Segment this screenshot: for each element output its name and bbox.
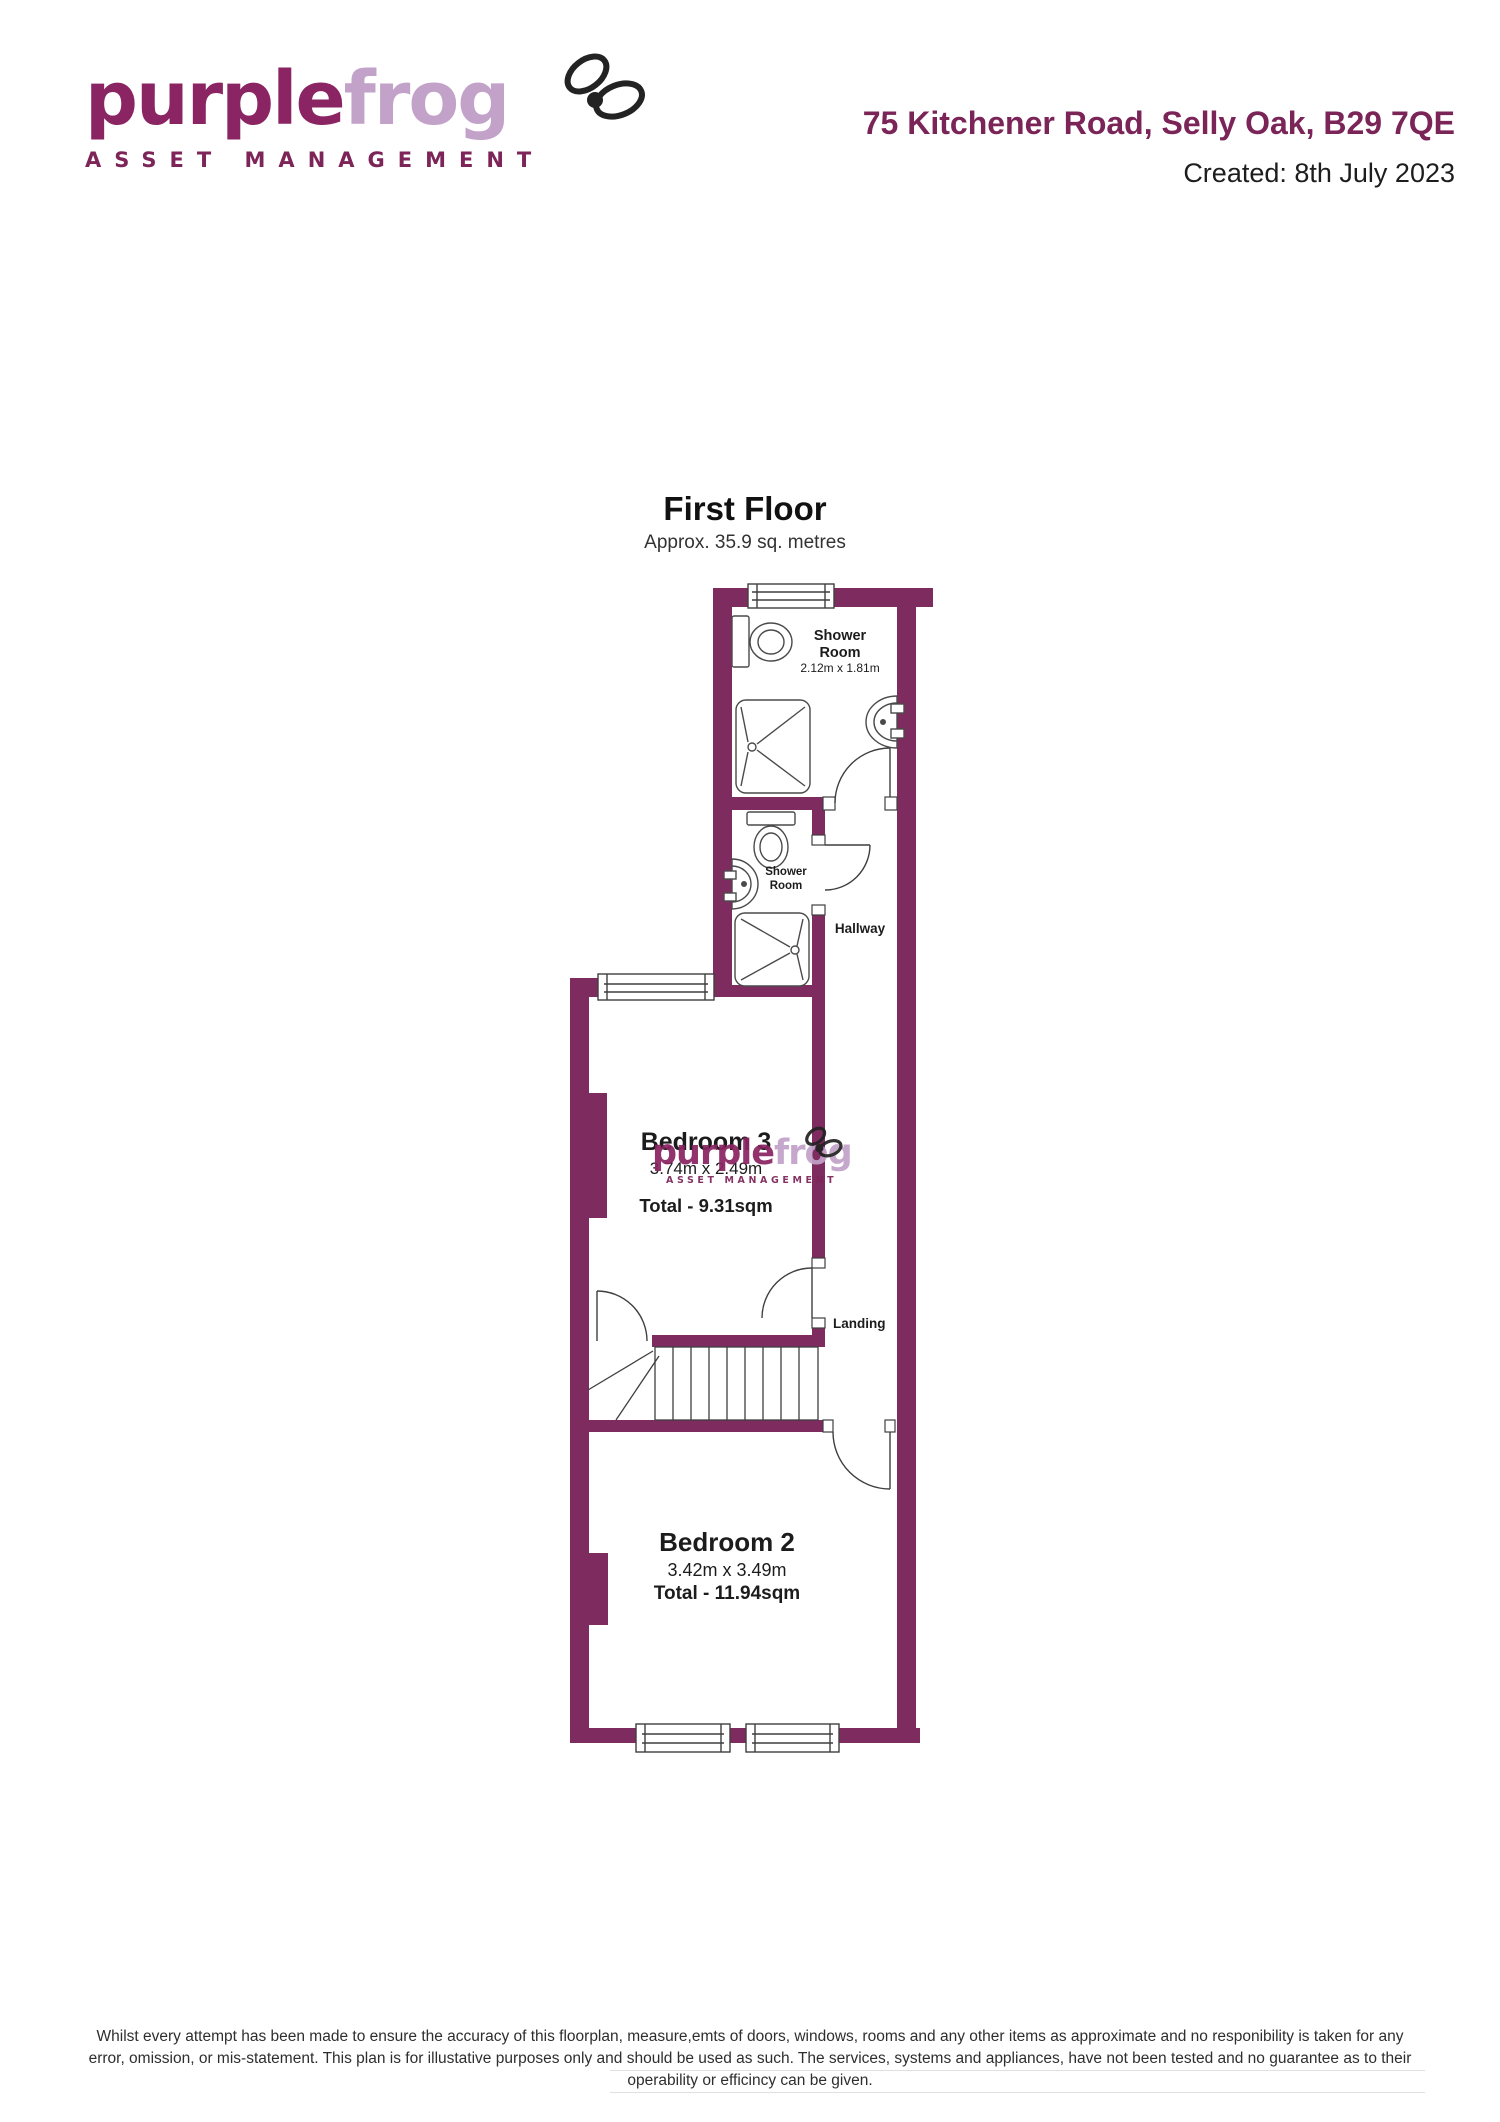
shower-tray-icon [736, 700, 810, 793]
room-label-hallway: Hallway [798, 921, 922, 936]
butterfly-icon [800, 1124, 846, 1166]
staircase [588, 1347, 818, 1420]
room-dims: 3.42m x 3.49m [597, 1560, 857, 1581]
room-dims: 2.12m x 1.81m [760, 662, 920, 676]
floor-title: First Floor [570, 490, 920, 528]
watermark-word-purple: purple [652, 1133, 774, 1173]
watermark-tagline: ASSET MANAGEMENT [666, 1175, 852, 1186]
toilet-icon [732, 616, 749, 667]
footer-rule [610, 2092, 1425, 2093]
room-total-area: Total - 11.94sqm [597, 1583, 857, 1605]
footer-rule [610, 2070, 1425, 2071]
room-label-shower-room-mid: Shower Room [726, 866, 846, 894]
watermark-logo: purplefrog ASSET MANAGEMENT [652, 1136, 852, 1186]
room-total-area: Total - 9.31sqm [586, 1195, 826, 1217]
room-label-shower-room-top: Shower Room 2.12m x 1.81m [760, 628, 920, 676]
plan-title-block: First Floor Approx. 35.9 sq. metres [570, 490, 920, 554]
floorplan-drawing [0, 0, 1500, 2122]
toilet-icon [747, 812, 795, 825]
room-label-bedroom2: Bedroom 2 3.42m x 3.49m Total - 11.94sqm [597, 1527, 857, 1605]
floor-area: Approx. 35.9 sq. metres [570, 532, 920, 554]
disclaimer: Whilst every attempt has been made to en… [0, 2026, 1500, 2092]
disclaimer-line1: Whilst every attempt has been made to en… [0, 2026, 1500, 2048]
room-name: Bedroom 2 [597, 1527, 857, 1558]
disclaimer-line3: operability or efficincy can be given. [0, 2070, 1500, 2092]
floorplan-page: purplefrog ASSET MANAGEMENT 75 Kitchener… [0, 0, 1500, 2122]
disclaimer-line2: error, omission, or mis-statement. This … [0, 2048, 1500, 2070]
room-label-landing: Landing [833, 1316, 923, 1331]
